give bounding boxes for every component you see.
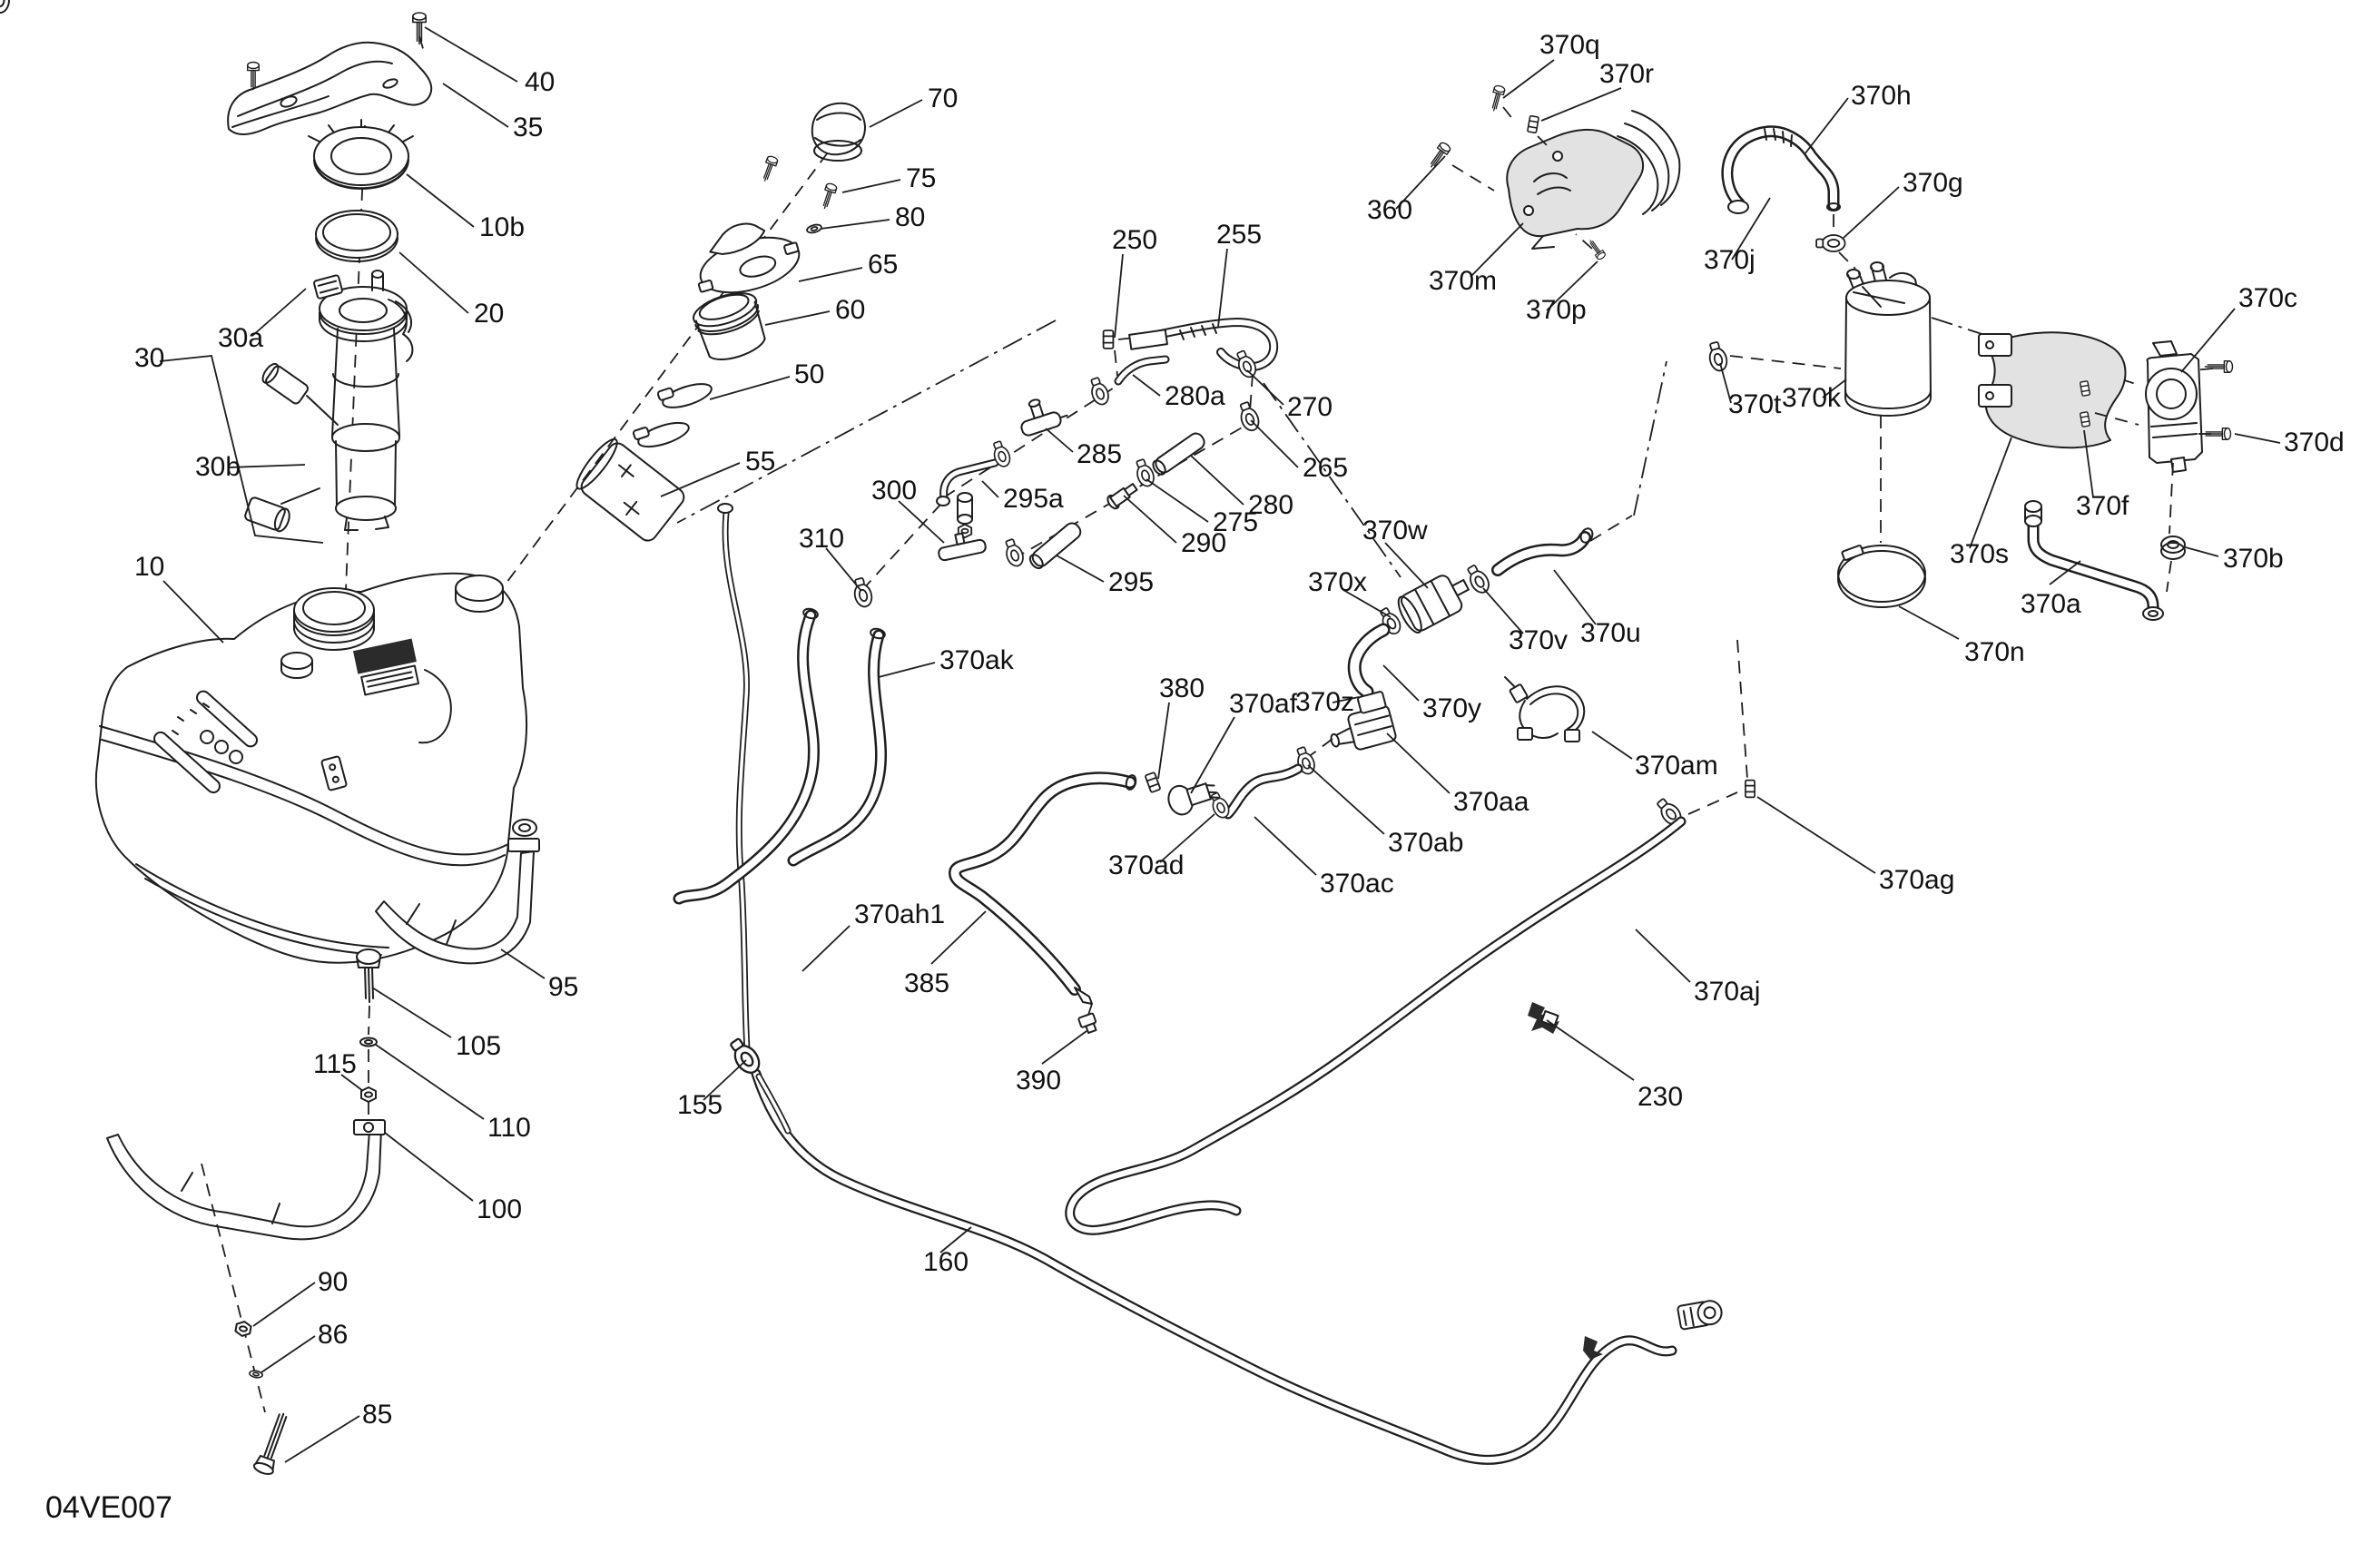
leader-280 xyxy=(1191,456,1244,505)
leader-370ab xyxy=(1308,765,1384,834)
callout-80: 80 xyxy=(895,202,925,232)
callout-295a: 295a xyxy=(1003,484,1064,514)
leader-80 xyxy=(821,220,890,229)
fuel-tank xyxy=(96,574,526,963)
leader-370w xyxy=(1385,543,1428,588)
leader-105 xyxy=(372,988,451,1037)
air-duct-cover xyxy=(228,13,431,134)
leader-370u xyxy=(1554,570,1596,624)
callout-300: 300 xyxy=(871,476,917,506)
leader-265 xyxy=(1251,420,1298,467)
leader-40 xyxy=(425,27,517,82)
leader-230 xyxy=(1547,1020,1634,1080)
diagram-code: 04VE007 xyxy=(45,1490,172,1525)
callout-370aj: 370aj xyxy=(1694,977,1760,1007)
callout-370k: 370k xyxy=(1782,383,1842,413)
leader-285 xyxy=(1046,428,1073,452)
filler-cap-assembly xyxy=(572,103,865,545)
leader-370h xyxy=(1805,98,1848,154)
leader-35 xyxy=(443,84,508,127)
lock-ring-and-seal xyxy=(309,120,413,261)
drain-hose xyxy=(955,774,1137,1035)
leader-370ak xyxy=(879,663,935,677)
leader-60 xyxy=(765,311,830,325)
leader-270 xyxy=(1247,370,1283,405)
callout-370ak: 370ak xyxy=(939,645,1015,675)
leader-370am xyxy=(1592,732,1632,759)
callout-285: 285 xyxy=(1077,439,1122,469)
callout-40: 40 xyxy=(525,67,555,97)
fuel-pump-module xyxy=(244,270,413,533)
diagram-page: 403510b2030a3030b10707580656050552502552… xyxy=(0,0,2380,1543)
leader-95 xyxy=(501,949,545,978)
leader-370aj xyxy=(1636,929,1690,982)
callout-370h: 370h xyxy=(1851,81,1912,111)
callout-370am: 370am xyxy=(1635,751,1718,781)
leader-390 xyxy=(1042,1031,1087,1064)
leader-370ag xyxy=(1757,797,1875,873)
leader-10 xyxy=(163,581,223,643)
callout-65: 65 xyxy=(868,250,898,280)
vent-line-fittings xyxy=(851,322,1274,609)
leader-65 xyxy=(799,268,862,281)
leader-370s xyxy=(1970,437,2011,548)
leader-50 xyxy=(710,377,790,399)
callout-35: 35 xyxy=(513,113,543,143)
callout-255: 255 xyxy=(1216,220,1262,250)
leader-370g xyxy=(1844,187,1899,238)
leader-370af xyxy=(1191,717,1234,793)
callout-75: 75 xyxy=(906,163,936,193)
callout-155: 155 xyxy=(677,1090,723,1120)
callout-370j: 370j xyxy=(1704,245,1755,275)
callout-250: 250 xyxy=(1112,225,1157,255)
leader-370y xyxy=(1383,665,1419,701)
callout-370f: 370f xyxy=(2076,491,2129,521)
callout-370b: 370b xyxy=(2223,544,2284,574)
callout-110: 110 xyxy=(487,1113,531,1143)
callout-370n: 370n xyxy=(1964,637,2025,667)
wiring-harness xyxy=(1505,677,1584,742)
leader-370ah1 xyxy=(802,926,850,971)
leader-10b xyxy=(407,174,474,227)
callout-370ah1: 370ah1 xyxy=(854,899,945,929)
callout-370t: 370t xyxy=(1728,389,1782,419)
leader-370b xyxy=(2182,546,2218,556)
callout-370y: 370y xyxy=(1422,693,1481,723)
leader-370r xyxy=(1541,88,1621,121)
leader-280a xyxy=(1133,375,1160,396)
callout-370x: 370x xyxy=(1308,567,1367,597)
callout-390: 390 xyxy=(1016,1066,1061,1096)
callout-30b: 30b xyxy=(195,452,241,482)
callout-310: 310 xyxy=(799,524,844,554)
callout-385: 385 xyxy=(904,968,949,998)
callout-370c: 370c xyxy=(2238,283,2297,313)
callout-60: 60 xyxy=(835,295,865,325)
callout-30: 30 xyxy=(134,343,164,373)
callout-370aa: 370aa xyxy=(1453,787,1529,817)
callout-70: 70 xyxy=(928,84,958,113)
leader-250 xyxy=(1115,254,1123,338)
callout-370r: 370r xyxy=(1599,59,1654,89)
callout-10: 10 xyxy=(134,552,164,582)
callout-270: 270 xyxy=(1287,392,1333,422)
callout-100: 100 xyxy=(477,1194,522,1224)
callout-370af: 370af xyxy=(1229,689,1298,719)
leader-310 xyxy=(826,548,861,590)
callout-370s: 370s xyxy=(1950,539,2009,569)
callout-380: 380 xyxy=(1159,673,1205,703)
leader-370d xyxy=(2235,434,2280,443)
callout-90: 90 xyxy=(318,1267,348,1297)
leader-295a xyxy=(982,481,998,497)
callout-370ad: 370ad xyxy=(1108,850,1184,880)
leader-85 xyxy=(285,1416,359,1462)
leader-370n xyxy=(1899,606,1959,639)
callout-10b: 10b xyxy=(479,212,525,242)
callout-370z: 370z xyxy=(1295,687,1354,717)
callout-370q: 370q xyxy=(1539,30,1600,60)
callout-265: 265 xyxy=(1303,453,1348,483)
hose-clip-230 xyxy=(1528,1002,1559,1034)
callout-290: 290 xyxy=(1181,528,1226,558)
callout-370a: 370a xyxy=(2021,589,2081,619)
callout-280a: 280a xyxy=(1165,381,1225,411)
callout-295: 295 xyxy=(1108,567,1154,597)
callout-160: 160 xyxy=(923,1247,969,1277)
leader-55 xyxy=(661,463,740,496)
canister-assembly xyxy=(1706,262,2125,607)
callout-20: 20 xyxy=(474,299,504,329)
fuel-supply-hose xyxy=(756,1074,1724,1459)
purge-pump-bracket xyxy=(1427,84,1680,260)
leader-275 xyxy=(1146,479,1208,522)
callout-55: 55 xyxy=(745,447,775,477)
callout-115: 115 xyxy=(313,1049,357,1079)
leader-370aa xyxy=(1387,733,1450,793)
leader-90 xyxy=(253,1283,315,1326)
callout-370w: 370w xyxy=(1362,516,1428,545)
leader-290 xyxy=(1124,496,1176,543)
callout-370ab: 370ab xyxy=(1388,828,1463,858)
callout-50: 50 xyxy=(794,359,824,389)
callout-95: 95 xyxy=(548,972,578,1002)
callout-230: 230 xyxy=(1637,1082,1683,1112)
leader-70 xyxy=(870,100,922,127)
callout-370g: 370g xyxy=(1903,168,1963,198)
callout-85: 85 xyxy=(362,1400,392,1430)
callout-370v: 370v xyxy=(1509,625,1568,655)
fuel-system-exploded-diagram: 403510b2030a3030b10707580656050552502552… xyxy=(0,0,2380,1543)
leader-380 xyxy=(1158,703,1169,779)
leader-86 xyxy=(261,1336,315,1372)
leader-255 xyxy=(1218,249,1227,327)
leader-20 xyxy=(399,252,468,313)
callout-370u: 370u xyxy=(1580,618,1641,648)
leader-295 xyxy=(1057,555,1104,582)
callout-105: 105 xyxy=(456,1031,501,1061)
callout-370d: 370d xyxy=(2284,428,2345,457)
callout-370m: 370m xyxy=(1429,266,1497,296)
callout-30a: 30a xyxy=(218,323,263,353)
leader-370q xyxy=(1503,60,1554,98)
leader-75 xyxy=(842,180,900,192)
callout-370p: 370p xyxy=(1526,295,1587,325)
leader-370ac xyxy=(1254,817,1316,875)
callout-370ag: 370ag xyxy=(1879,865,1954,895)
callout-360: 360 xyxy=(1367,195,1412,225)
leader-100 xyxy=(385,1133,473,1201)
callout-370ac: 370ac xyxy=(1320,869,1394,899)
callout-86: 86 xyxy=(318,1320,348,1350)
